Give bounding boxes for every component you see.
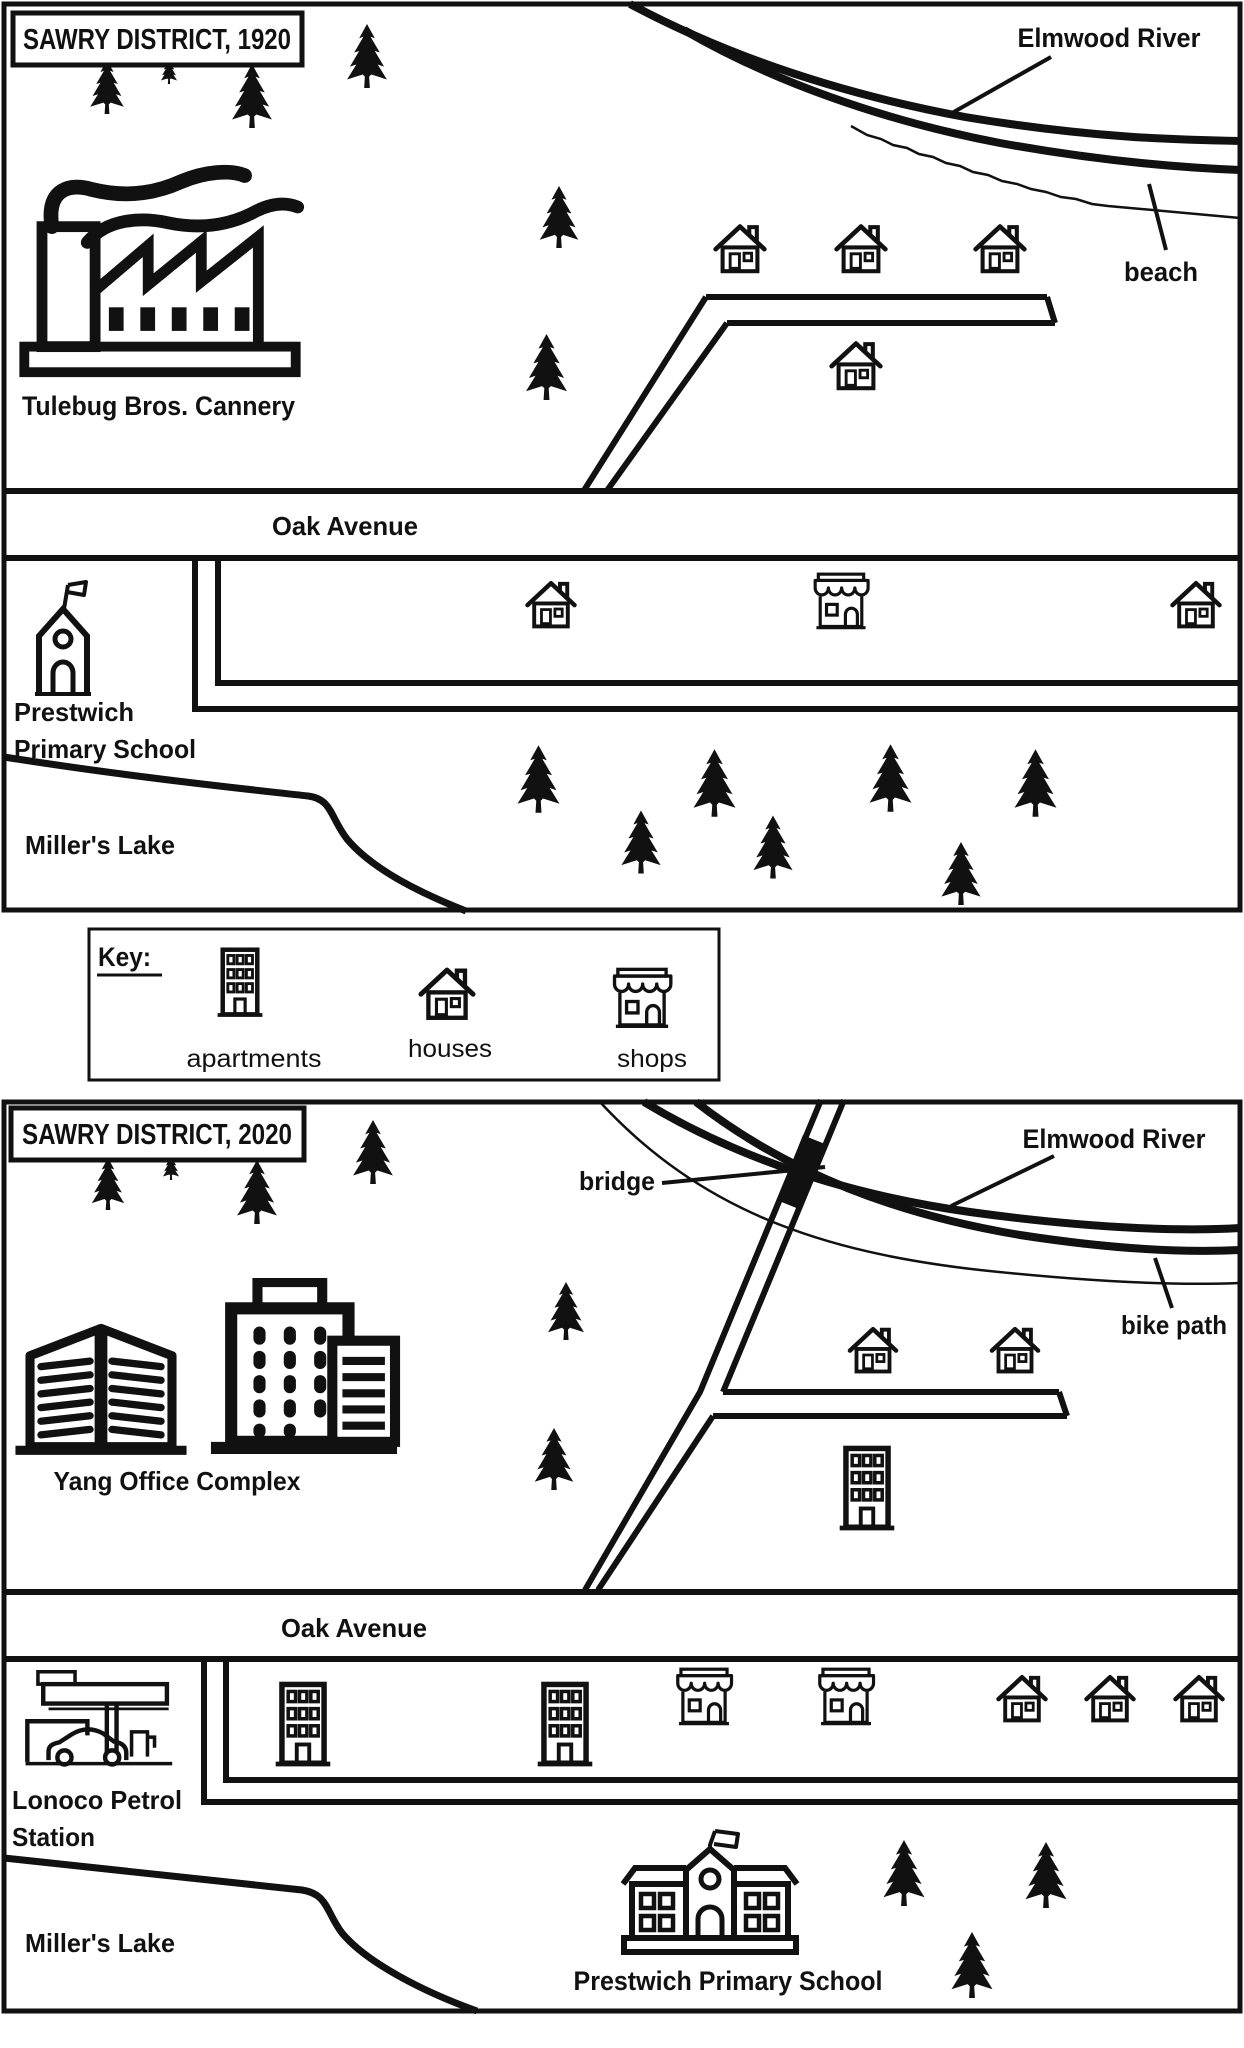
map-2020: SAWRY DISTRICT, 2020 Elmwood River bridg… bbox=[4, 1100, 1240, 2011]
school-icon bbox=[623, 1831, 797, 1952]
tree-icon bbox=[353, 1120, 393, 1184]
lake-label-2020: Miller's Lake bbox=[25, 1928, 175, 1958]
house-icon bbox=[527, 583, 574, 626]
map-1920-title: SAWRY DISTRICT, 1920 bbox=[23, 24, 291, 56]
shop-icon bbox=[678, 1669, 732, 1723]
house-icon bbox=[832, 344, 881, 389]
elmwood-river-label-1920: Elmwood River bbox=[1018, 23, 1201, 53]
house-icon bbox=[837, 227, 886, 272]
school-label-2020: Prestwich Primary School bbox=[574, 1966, 883, 1996]
petrol-label-line2: Station bbox=[12, 1822, 95, 1852]
side-road-2020 bbox=[204, 1659, 1240, 1802]
beach-pointer bbox=[1149, 184, 1166, 250]
bike-path-label: bike path bbox=[1121, 1310, 1227, 1340]
tree-icon bbox=[753, 816, 792, 879]
tree-icon bbox=[694, 749, 736, 817]
officeL-icon bbox=[15, 1328, 186, 1450]
tree-icon bbox=[518, 745, 560, 813]
bridge-label: bridge bbox=[579, 1166, 655, 1196]
key-title: Key: bbox=[98, 942, 151, 972]
elmwood-river-pointer-2020 bbox=[951, 1156, 1054, 1206]
tree-icon bbox=[941, 842, 980, 905]
house-icon bbox=[1175, 1677, 1222, 1720]
map-1920-icons bbox=[24, 24, 1219, 905]
tree-icon bbox=[951, 1932, 992, 1998]
petrol-icon bbox=[26, 1672, 173, 1765]
shop-icon bbox=[615, 969, 671, 1026]
legend-key: Key: apartments houses shops bbox=[89, 929, 719, 1080]
house-icon bbox=[421, 970, 473, 1018]
apartment-icon bbox=[840, 1448, 895, 1528]
factory-icon bbox=[24, 172, 297, 372]
beach-label: beach bbox=[1124, 257, 1198, 287]
key-label-shops: shops bbox=[617, 1045, 687, 1073]
tree-icon bbox=[347, 24, 387, 88]
chapel-icon bbox=[35, 582, 91, 694]
tree-icon bbox=[237, 1160, 277, 1224]
oak-avenue-label-2020: Oak Avenue bbox=[281, 1613, 427, 1643]
tree-icon bbox=[548, 1282, 584, 1340]
bridge-marker bbox=[789, 1140, 815, 1205]
side-road-1920 bbox=[195, 558, 1240, 709]
map-2020-title: SAWRY DISTRICT, 2020 bbox=[22, 1119, 292, 1151]
elmwood-river-pointer-1920 bbox=[952, 57, 1051, 113]
elmwood-river-label-2020: Elmwood River bbox=[1023, 1124, 1206, 1154]
key-label-houses: houses bbox=[408, 1035, 492, 1063]
tree-icon bbox=[1025, 1842, 1066, 1908]
tree-icon bbox=[540, 186, 579, 248]
oak-avenue-road-2020 bbox=[4, 1592, 1240, 1659]
office-complex-label: Yang Office Complex bbox=[54, 1466, 301, 1496]
tree-icon bbox=[232, 64, 272, 128]
district-maps-figure: SAWRY DISTRICT, 1920 Elmwood River beach… bbox=[0, 0, 1244, 2048]
shop-icon bbox=[820, 1669, 874, 1723]
house-icon bbox=[992, 1329, 1038, 1371]
tree-icon bbox=[535, 1428, 574, 1490]
access-road-stub bbox=[713, 1392, 1067, 1416]
figure-canvas: SAWRY DISTRICT, 1920 Elmwood River beach… bbox=[0, 0, 1244, 2048]
tree-icon bbox=[92, 1158, 124, 1210]
apartment-icon bbox=[218, 950, 263, 1015]
tree-icon bbox=[870, 744, 912, 812]
map-1920: SAWRY DISTRICT, 1920 Elmwood River beach… bbox=[4, 4, 1240, 911]
school-label-1920-line2: Primary School bbox=[14, 734, 196, 764]
key-label-apartments: apartments bbox=[187, 1045, 322, 1073]
lake-label-1920: Miller's Lake bbox=[25, 830, 175, 860]
house-icon bbox=[1086, 1677, 1133, 1720]
tree-icon bbox=[621, 811, 660, 874]
school-label-1920-line1: Prestwich bbox=[14, 697, 134, 727]
tree-icon bbox=[90, 60, 124, 114]
tree-icon bbox=[1015, 749, 1057, 817]
house-icon bbox=[716, 227, 765, 272]
tree-icon bbox=[883, 1840, 924, 1906]
tree-icon bbox=[526, 334, 567, 400]
apartment-icon bbox=[276, 1684, 331, 1764]
cannery-label: Tulebug Bros. Cannery bbox=[22, 391, 295, 421]
officeR-icon bbox=[211, 1282, 397, 1448]
petrol-label-line1: Lonoco Petrol bbox=[12, 1785, 182, 1815]
shop-icon bbox=[815, 574, 868, 628]
map-1920-border bbox=[4, 4, 1240, 910]
house-icon bbox=[850, 1329, 896, 1371]
apartment-icon bbox=[538, 1684, 593, 1764]
house-icon bbox=[1172, 583, 1219, 626]
riverside-road-1920 bbox=[583, 297, 1055, 492]
oak-avenue-label-1920: Oak Avenue bbox=[272, 511, 418, 541]
house-icon bbox=[976, 227, 1025, 272]
oak-avenue-road-1920 bbox=[4, 491, 1240, 558]
house-icon bbox=[998, 1677, 1045, 1720]
